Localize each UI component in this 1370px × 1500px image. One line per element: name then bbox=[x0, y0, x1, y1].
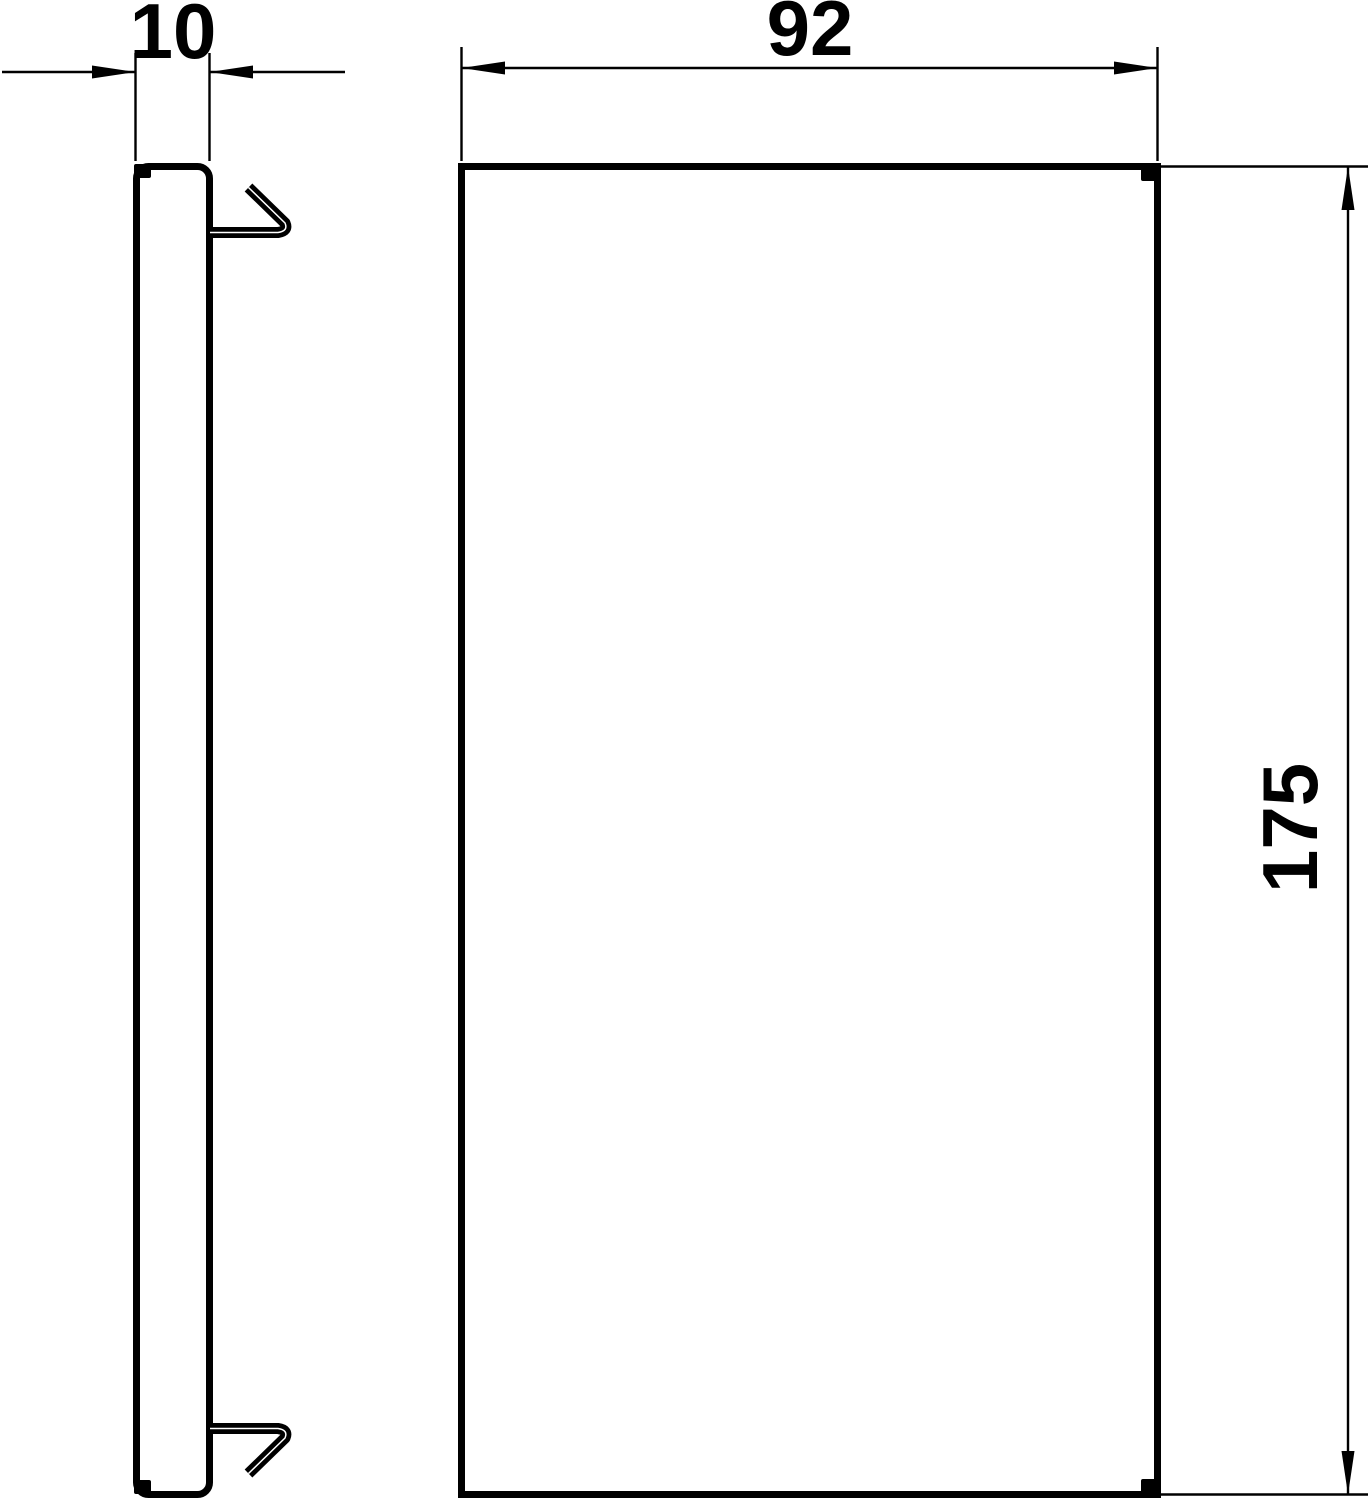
height-arrow-bottom-icon bbox=[1342, 1451, 1355, 1495]
width-arrow-right-icon bbox=[1114, 62, 1158, 75]
dimension-drawing-canvas: 10 92 175 bbox=[0, 0, 1370, 1500]
front-view bbox=[462, 167, 1158, 1495]
dimension-depth: 10 bbox=[2, 0, 345, 161]
technical-drawing-page: 10 92 175 bbox=[0, 0, 1370, 1500]
front-view-outline bbox=[462, 167, 1158, 1495]
side-profile-outline bbox=[137, 167, 210, 1495]
width-dimension-label: 92 bbox=[767, 0, 854, 72]
front-bottom-lip-notch bbox=[1141, 1479, 1156, 1493]
dimension-width: 92 bbox=[462, 0, 1158, 161]
height-arrow-top-icon bbox=[1342, 167, 1355, 211]
side-top-hook bbox=[210, 188, 286, 233]
dimension-height: 175 bbox=[1161, 167, 1368, 1495]
side-top-lip-notch bbox=[134, 164, 151, 178]
width-arrow-left-icon bbox=[462, 62, 506, 75]
front-top-lip-notch bbox=[1141, 167, 1156, 181]
side-bottom-hook bbox=[210, 1429, 286, 1474]
side-bottom-lip-notch bbox=[134, 1480, 151, 1494]
depth-dimension-label: 10 bbox=[130, 0, 217, 75]
height-dimension-label: 175 bbox=[1246, 763, 1334, 893]
side-profile-view bbox=[134, 164, 286, 1495]
